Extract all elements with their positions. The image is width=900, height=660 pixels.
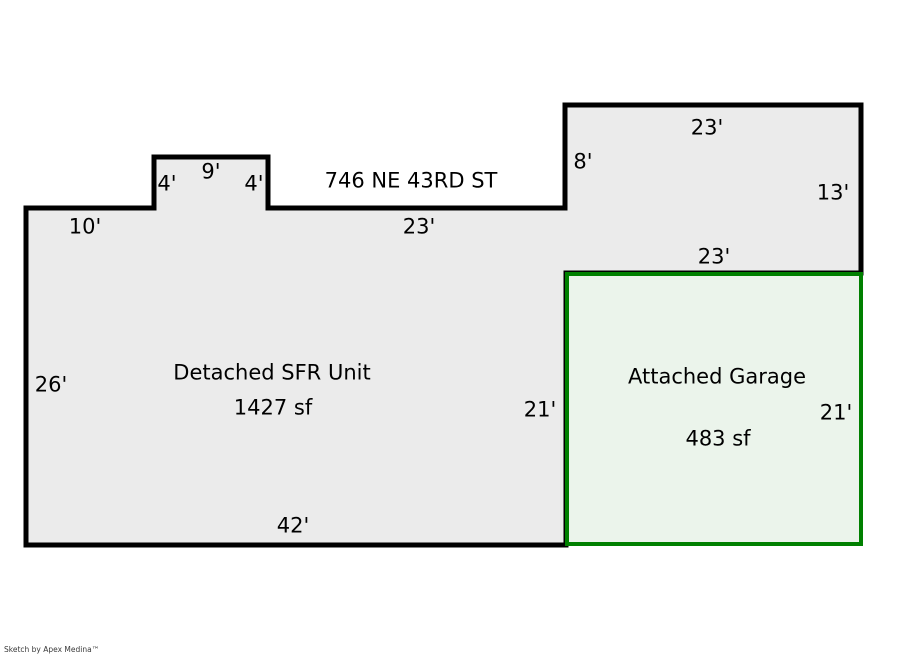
dim-label-main-top-23: 23': [403, 217, 436, 238]
credit-label: Sketch by Apex Medina™: [4, 646, 99, 654]
dim-label-step-left-8: 8': [573, 152, 592, 173]
dim-label-bump-top-9: 9': [201, 162, 220, 183]
dim-label-upper-top-23: 23': [691, 118, 724, 139]
garage-name-label: Attached Garage: [628, 367, 806, 388]
dim-label-garage-right-21: 21': [820, 403, 853, 424]
sketch-page: 746 NE 43RD ST 10' 4' 9' 4' 23' 8' 23' 1…: [0, 0, 900, 660]
garage-area-label: 483 sf: [685, 429, 750, 450]
dim-label-bump-left-4: 4': [157, 174, 176, 195]
sfr-name-label: Detached SFR Unit: [173, 363, 370, 384]
dim-label-garage-top-23: 23': [698, 247, 731, 268]
sfr-area-label: 1427 sf: [234, 398, 312, 419]
dim-label-left-26: 26': [35, 375, 68, 396]
dim-label-bump-right-4: 4': [244, 174, 263, 195]
dim-label-upper-right-13: 13': [817, 183, 850, 204]
garage-outline: [567, 274, 861, 544]
dim-label-sfr-right-21: 21': [524, 400, 557, 421]
address-label: 746 NE 43RD ST: [325, 171, 498, 192]
floorplan-svg: [0, 0, 900, 660]
dim-label-bottom-42: 42': [277, 516, 310, 537]
dim-label-top-left-10: 10': [69, 217, 102, 238]
